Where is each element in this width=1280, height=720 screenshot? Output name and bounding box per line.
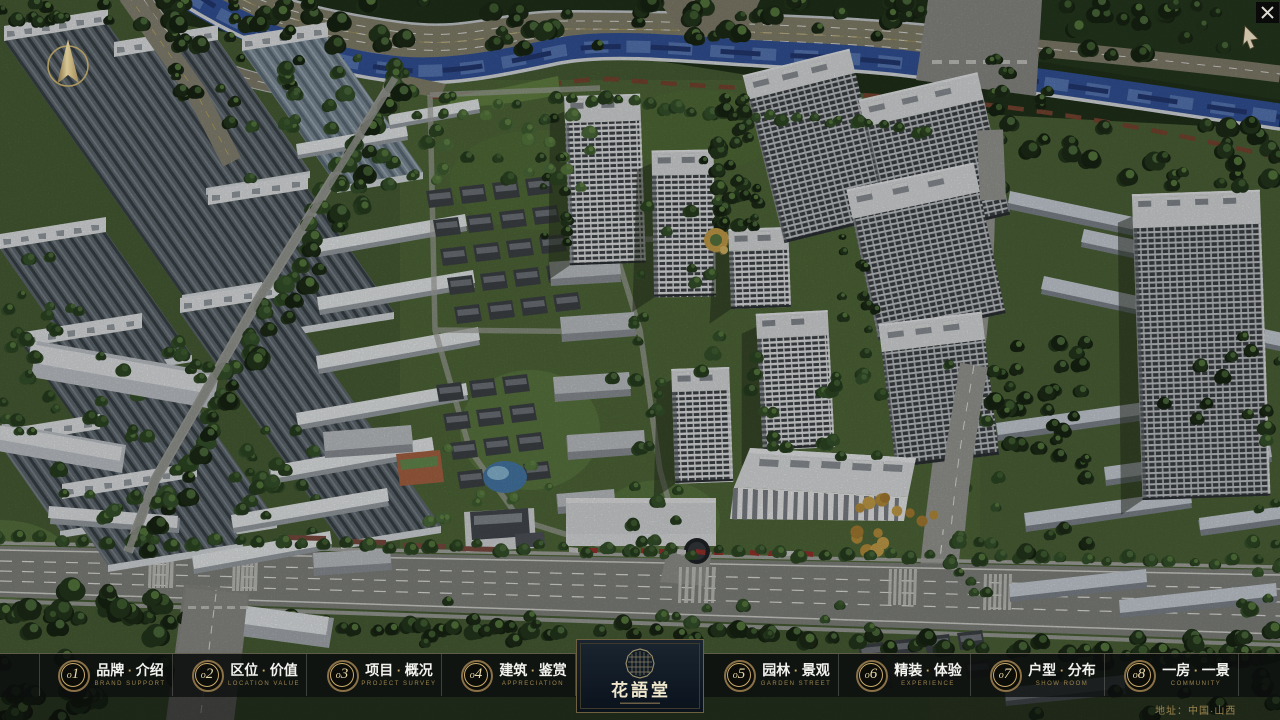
svg-text:花語堂: 花語堂 xyxy=(611,680,671,700)
